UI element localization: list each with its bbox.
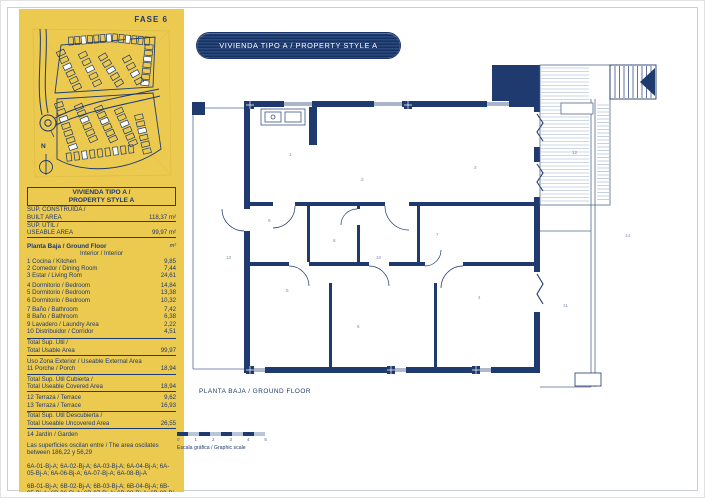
building-unit <box>98 53 107 61</box>
areas-table: VIVIENDA TIPO A / PROPERTY STYLE A SUP. … <box>27 187 176 492</box>
floor-header: Planta Baja / Ground Floor m² <box>27 243 176 250</box>
building-unit <box>64 129 73 136</box>
building-unit <box>122 55 131 63</box>
building-unit <box>105 148 111 157</box>
building-unit <box>60 56 69 64</box>
scale-segment <box>254 432 265 436</box>
building-unit <box>100 117 109 125</box>
external-header: Uso Zona Exterior / Useable External Are… <box>27 358 176 365</box>
building-unit <box>68 143 77 150</box>
room-number-10: 10 <box>376 255 382 260</box>
terrace-rows: 12 Terraza / Terrace9,6213 Terraza / Ter… <box>27 394 176 409</box>
room-number-11: 11 <box>563 303 568 308</box>
page-title-pill: VIVIENDA TIPO A / PROPERTY STYLE A <box>197 33 400 58</box>
window-frame-crosses <box>246 101 480 374</box>
room-number-6: 6 <box>357 324 360 329</box>
building-unit <box>66 153 72 162</box>
site-buildings <box>54 34 153 161</box>
scale-segment <box>243 432 254 436</box>
building-unit <box>138 127 147 133</box>
phase-label: FASE 6 <box>134 15 168 24</box>
brochure-page: FASE 6 N <box>0 0 705 498</box>
scale-ticks: 012345 <box>177 437 267 442</box>
table-row: BUILT AREA118,37 m² <box>27 214 176 222</box>
scale-tick: 4 <box>247 437 250 442</box>
building-unit <box>143 62 151 68</box>
table-row: 4 Dormitorio / Bedroom14,84 <box>27 282 176 289</box>
room-number-13: 13 <box>226 255 232 260</box>
building-unit <box>78 51 87 59</box>
table-row: USEABLE AREA99,97 m² <box>27 229 176 237</box>
room-number-3: 3 <box>474 165 477 170</box>
building-unit <box>69 76 78 84</box>
units-list-b: 6B-01-Bj-A; 6B-02-Bj-A; 6B-03-Bj-A; 6B-0… <box>27 483 176 492</box>
building-unit <box>57 108 66 115</box>
porch-row: 11 Porche / Porch 18,94 <box>27 365 176 372</box>
north-arrow-icon <box>40 154 53 175</box>
building-unit <box>119 34 125 42</box>
column <box>192 102 205 115</box>
table-row: SUP. CONSTRUÍDA / <box>27 206 176 213</box>
building-unit <box>59 115 68 122</box>
building-unit <box>88 135 97 143</box>
scale-tick: 0 <box>177 437 180 442</box>
roundabout <box>40 115 56 131</box>
building-unit <box>108 135 117 143</box>
room-number-4: 4 <box>478 295 481 300</box>
page-title: VIVIENDA TIPO A / PROPERTY STYLE A <box>219 41 377 50</box>
building-unit <box>126 133 135 141</box>
building-unit <box>80 116 89 124</box>
windows <box>251 103 509 371</box>
building-unit <box>138 36 144 44</box>
room-number-8: 8 <box>333 238 336 243</box>
building-unit <box>72 83 81 91</box>
building-unit <box>128 145 134 154</box>
furniture <box>261 109 305 125</box>
building-unit <box>103 123 112 131</box>
door-arcs <box>222 206 463 288</box>
room-number-1: 1 <box>289 152 292 157</box>
building-unit <box>97 149 103 158</box>
building-unit <box>106 34 111 42</box>
scale-tick: 1 <box>194 437 197 442</box>
building-unit <box>114 79 123 87</box>
building-unit <box>92 79 101 87</box>
building-unit <box>74 152 80 161</box>
stairs <box>610 65 656 99</box>
room-number-12: 12 <box>572 150 578 155</box>
site-boundary-lines <box>33 29 171 177</box>
total-usable-row: Total Sup. Útil / Total Usable Area99,97 <box>27 338 176 356</box>
building-unit <box>135 114 144 120</box>
terrace-decking <box>541 68 609 201</box>
building-unit <box>142 68 150 74</box>
garden-row: 14 Jardín / Garden <box>27 431 176 438</box>
building-unit <box>143 148 152 155</box>
north-label: N <box>41 143 46 150</box>
terrace-13-boundary <box>193 108 244 369</box>
building-unit <box>97 111 106 119</box>
building-unit <box>120 120 129 128</box>
building-unit <box>125 35 131 43</box>
scale-segment <box>177 432 188 436</box>
table-row: 1 Cocina / Kitchen9,85 <box>27 258 176 265</box>
scale-segment <box>210 432 221 436</box>
plan-caption: PLANTA BAJA / GROUND FLOOR <box>199 388 311 395</box>
table-row: 3 Estar / Living Rom24,61 <box>27 272 176 279</box>
building-unit <box>56 49 65 57</box>
interior-rows: 1 Cocina / Kitchen9,852 Comedor / Dining… <box>27 258 176 336</box>
building-unit <box>106 129 115 137</box>
building-unit <box>63 63 72 71</box>
table-row: 10 Distribuidor / Corridor4,51 <box>27 328 176 335</box>
building-unit <box>89 150 95 159</box>
built-area-rows: SUP. CONSTRUÍDA /BUILT AREA118,37 m²SUP.… <box>27 206 176 238</box>
scale-segment <box>232 432 243 436</box>
table-row: 2 Comedor / Dining Room7,44 <box>27 265 176 272</box>
table-row: 8 Baño / Bathroom6,38 <box>27 313 176 320</box>
table-row: 5 Dormitorio / Bedroom13,38 <box>27 289 176 296</box>
total-uncovered-row: Total Sup. Útil Descubierta / Total Usea… <box>27 411 176 429</box>
scale-tick: 2 <box>212 437 215 442</box>
building-unit <box>110 72 119 80</box>
building-unit <box>106 66 115 74</box>
sidebar: FASE 6 N <box>19 9 184 492</box>
building-unit <box>54 101 63 108</box>
table-row: 12 Terraza / Terrace9,62 <box>27 394 176 401</box>
building-unit <box>130 70 139 78</box>
building-unit <box>82 151 88 160</box>
table-row: 9 Lavadero / Laundry Area2,22 <box>27 321 176 328</box>
building-unit <box>82 58 91 66</box>
floor-plan-drawing: 1234567891011121314 <box>189 57 659 397</box>
scale-bar <box>177 432 265 436</box>
building-unit <box>61 122 70 129</box>
building-unit <box>141 141 150 147</box>
building-unit <box>85 65 94 73</box>
building-unit <box>113 147 119 156</box>
table-row: 7 Baño / Bathroom7,42 <box>27 306 176 313</box>
building-unit <box>81 36 86 44</box>
scale-segment <box>221 432 232 436</box>
building-unit <box>117 114 126 122</box>
building-unit <box>123 126 132 134</box>
wall-openings <box>244 101 540 373</box>
building-unit <box>114 107 123 115</box>
building-unit <box>120 146 126 155</box>
scale-label: Escala gráfica / Graphic scale <box>177 445 267 451</box>
building-unit <box>102 59 111 67</box>
scale-segment <box>188 432 199 436</box>
scale-tick: 5 <box>264 437 267 442</box>
window-frame-boxes <box>246 101 480 374</box>
room-number-2: 2 <box>361 177 364 182</box>
graphic-scale: 012345 Escala gráfica / Graphic scale <box>177 432 267 451</box>
building-unit <box>89 72 98 80</box>
area-note: Las superficies oscilan entre / The area… <box>27 442 176 456</box>
building-unit <box>144 50 152 56</box>
site-roads <box>39 29 161 169</box>
building-unit <box>66 136 75 143</box>
interior-header: Interior / Interior <box>27 250 176 257</box>
floor-plan: 1234567891011121314 <box>189 57 659 397</box>
room-number-7: 7 <box>436 232 439 237</box>
building-unit <box>131 36 137 44</box>
table-row: 13 Terraza / Terrace16,93 <box>27 402 176 409</box>
scale-segment <box>199 432 210 436</box>
room-number-9: 9 <box>268 218 271 223</box>
building-unit <box>136 121 145 127</box>
building-unit <box>139 134 148 140</box>
total-covered-row: Total Sup. Útil Cubierta / Total Useable… <box>27 374 176 392</box>
table-row: 6 Dormitorio / Bedroom10,32 <box>27 297 176 304</box>
building-unit <box>141 80 149 86</box>
room-number-14: 14 <box>625 233 631 238</box>
building-unit <box>77 110 86 118</box>
room-number-5: 5 <box>286 288 289 293</box>
site-plan <box>27 25 175 183</box>
building-unit <box>66 70 75 78</box>
table-row: SUP. ÚTIL / <box>27 222 176 229</box>
building-unit <box>143 56 151 62</box>
building-unit <box>86 129 95 137</box>
scale-tick: 3 <box>229 437 232 442</box>
kitchen-counter <box>261 109 305 125</box>
units-list-a: 6A-01-Bj-A; 6A-02-Bj-A; 6A-03-Bj-A; 6A-0… <box>27 463 176 477</box>
areas-table-title: VIVIENDA TIPO A / PROPERTY STYLE A <box>27 187 176 206</box>
shaft-hatched-block <box>492 65 540 101</box>
